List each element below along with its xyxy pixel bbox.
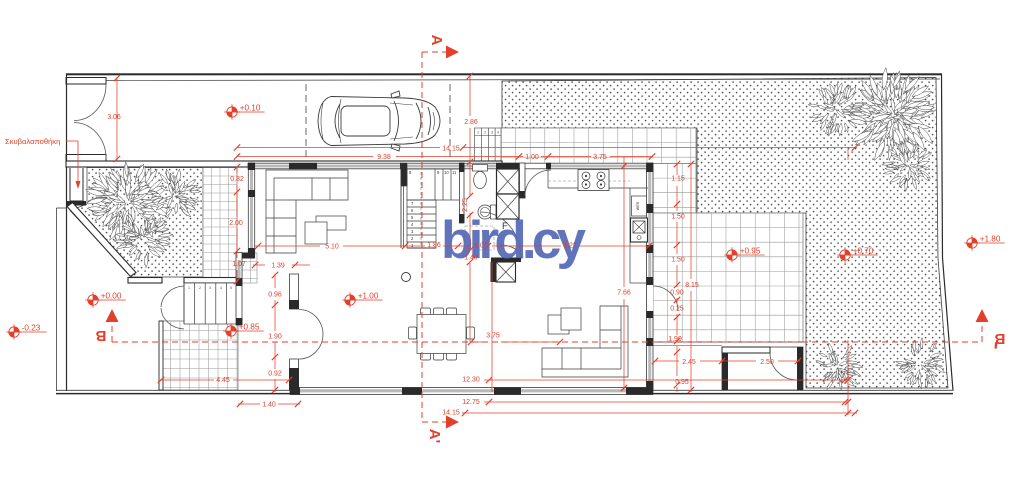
svg-text:2.45: 2.45 <box>682 359 696 366</box>
svg-text:+0.70: +0.70 <box>853 247 874 256</box>
svg-text:3: 3 <box>209 286 211 290</box>
svg-text:14.15: 14.15 <box>442 146 460 153</box>
svg-text:1.86: 1.86 <box>427 242 441 249</box>
svg-text:1.07: 1.07 <box>232 261 246 268</box>
svg-text:0.90: 0.90 <box>670 290 684 297</box>
svg-text:9.38: 9.38 <box>377 154 391 161</box>
svg-text:3: 3 <box>491 131 493 135</box>
svg-text:10: 10 <box>444 170 449 175</box>
svg-text:3.06: 3.06 <box>107 114 121 121</box>
svg-text:1: 1 <box>188 286 190 290</box>
svg-text:1.90: 1.90 <box>268 334 282 341</box>
svg-text:1.50: 1.50 <box>671 257 685 264</box>
svg-text:+0.95: +0.95 <box>740 247 761 256</box>
svg-text:+0.10: +0.10 <box>240 104 261 113</box>
svg-text:1.15: 1.15 <box>671 176 685 183</box>
svg-text:4.45: 4.45 <box>216 377 230 384</box>
svg-text:1.39: 1.39 <box>271 263 285 270</box>
svg-text:8.15: 8.15 <box>685 282 699 289</box>
svg-text:1.50: 1.50 <box>671 214 685 221</box>
svg-text:3.75: 3.75 <box>593 154 607 161</box>
svg-text:3.75: 3.75 <box>486 333 500 340</box>
svg-text:2: 2 <box>199 286 201 290</box>
svg-text:0.95: 0.95 <box>675 379 689 386</box>
svg-text:4: 4 <box>220 286 222 290</box>
svg-text:11: 11 <box>452 170 457 175</box>
svg-text:1: 1 <box>477 131 479 135</box>
svg-text:w/m: w/m <box>635 202 640 211</box>
svg-text:0.82: 0.82 <box>230 176 244 183</box>
svg-text:2: 2 <box>484 131 486 135</box>
svg-text:+0.00: +0.00 <box>101 292 122 301</box>
svg-text:-0.23: -0.23 <box>22 324 41 333</box>
svg-text:+1.80: +1.80 <box>980 235 1001 244</box>
svg-text:5.10: 5.10 <box>325 244 339 251</box>
svg-text:+0.85: +0.85 <box>239 323 260 332</box>
svg-text:12.75: 12.75 <box>462 399 480 406</box>
svg-text:0.96: 0.96 <box>268 292 282 299</box>
svg-text:4: 4 <box>497 131 499 135</box>
svg-text:1.00: 1.00 <box>525 154 539 161</box>
svg-text:0.92: 0.92 <box>268 371 282 378</box>
svg-text:A': A' <box>426 429 443 443</box>
svg-text:2.86: 2.86 <box>464 119 478 126</box>
svg-text:+1.00: +1.00 <box>358 292 379 301</box>
svg-text:5: 5 <box>230 286 232 290</box>
svg-text:12.30: 12.30 <box>462 377 480 384</box>
svg-text:0.25: 0.25 <box>670 306 684 313</box>
svg-text:bird.cy: bird.cy <box>441 211 587 270</box>
svg-text:2.25: 2.25 <box>462 198 469 212</box>
svg-text:1.40: 1.40 <box>464 255 478 262</box>
svg-text:1.07: 1.07 <box>474 243 488 250</box>
svg-text:14.15: 14.15 <box>442 410 460 417</box>
svg-text:1.40: 1.40 <box>262 402 276 409</box>
svg-text:2.00: 2.00 <box>229 220 243 227</box>
svg-text:2.50: 2.50 <box>760 359 774 366</box>
svg-text:Σκυβαλαποθήκη: Σκυβαλαποθήκη <box>5 137 60 146</box>
svg-text:B: B <box>95 327 106 344</box>
svg-text:5.22: 5.22 <box>563 243 577 250</box>
svg-text:A: A <box>428 35 445 46</box>
svg-text:7.66: 7.66 <box>617 290 631 297</box>
